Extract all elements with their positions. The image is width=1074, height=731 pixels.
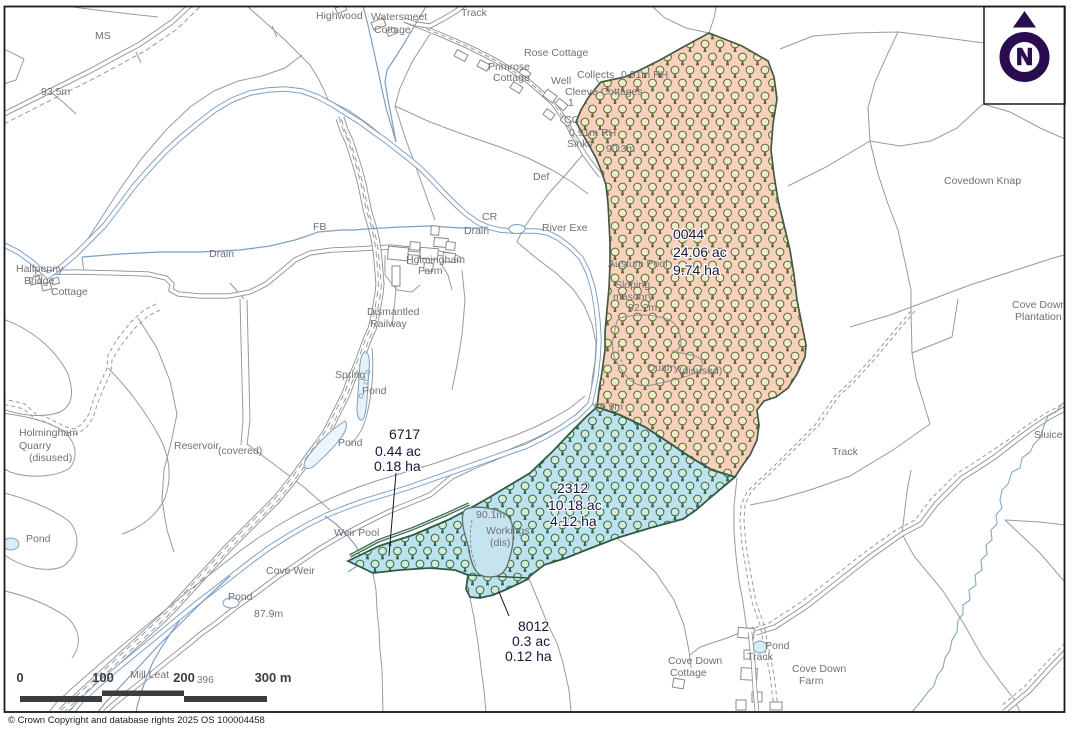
svg-text:Farm: Farm xyxy=(799,675,824,687)
svg-text:Spring: Spring xyxy=(335,369,366,381)
svg-text:Cleeve Cottages: Cleeve Cottages xyxy=(565,86,643,98)
svg-text:2312: 2312 xyxy=(557,480,588,496)
svg-text:Cove Down: Cove Down xyxy=(792,663,846,675)
svg-text:8012: 8012 xyxy=(518,618,549,634)
svg-text:N: N xyxy=(1016,44,1033,70)
svg-text:(disused): (disused) xyxy=(29,452,72,464)
svg-text:200: 200 xyxy=(173,670,195,685)
svg-text:Sluice: Sluice xyxy=(1034,429,1063,441)
svg-text:Drain: Drain xyxy=(209,248,234,260)
svg-text:Pond: Pond xyxy=(338,437,363,449)
svg-text:0: 0 xyxy=(16,670,23,685)
svg-text:Highwood: Highwood xyxy=(316,10,363,22)
svg-text:FB: FB xyxy=(313,221,326,233)
svg-text:Track: Track xyxy=(747,651,774,663)
svg-text:9.74 ha: 9.74 ha xyxy=(673,262,720,278)
svg-text:24.06 ac: 24.06 ac xyxy=(673,244,727,260)
svg-text:396: 396 xyxy=(197,675,214,686)
svg-text:4.12 ha: 4.12 ha xyxy=(550,513,597,529)
svg-text:300 m: 300 m xyxy=(255,670,292,685)
svg-text:(covered): (covered) xyxy=(218,445,262,457)
svg-text:Plantation: Plantation xyxy=(1015,311,1062,323)
svg-text:Pond: Pond xyxy=(228,591,253,603)
svg-text:Pond: Pond xyxy=(26,533,51,545)
svg-text:Sinks: Sinks xyxy=(567,138,593,150)
svg-text:Drain: Drain xyxy=(464,225,489,237)
svg-text:Rose Cottage: Rose Cottage xyxy=(524,47,588,59)
svg-text:0044: 0044 xyxy=(673,226,704,242)
svg-text:Sloping: Sloping xyxy=(615,279,650,291)
svg-text:6717: 6717 xyxy=(389,426,420,442)
svg-text:Pond: Pond xyxy=(362,385,387,397)
svg-text:0.3 ac: 0.3 ac xyxy=(512,633,550,649)
svg-text:Bridge: Bridge xyxy=(24,275,55,287)
svg-text:90.3m: 90.3m xyxy=(606,143,635,155)
svg-text:Reservoir: Reservoir xyxy=(174,440,219,452)
svg-text:0.91m RH: 0.91m RH xyxy=(621,69,668,81)
svg-text:CR: CR xyxy=(482,211,498,223)
svg-text:89.9m: 89.9m xyxy=(594,401,623,413)
svg-text:Collects: Collects xyxy=(577,69,614,81)
svg-text:Watersmeet: Watersmeet xyxy=(371,11,427,23)
svg-text:River Exe: River Exe xyxy=(542,222,588,234)
svg-text:Cove Down: Cove Down xyxy=(1012,299,1066,311)
svg-text:87.9m: 87.9m xyxy=(254,608,283,620)
svg-text:Cottage: Cottage xyxy=(374,24,411,36)
svg-text:Dismantled: Dismantled xyxy=(367,306,420,318)
svg-text:Cottage: Cottage xyxy=(493,72,530,84)
svg-text:Cove Weir: Cove Weir xyxy=(266,565,315,577)
svg-text:CC: CC xyxy=(564,114,580,126)
svg-text:Track: Track xyxy=(461,7,488,19)
svg-text:Cottage: Cottage xyxy=(51,286,88,298)
svg-text:Holmingham: Holmingham xyxy=(19,427,78,439)
svg-text:Weir Pool: Weir Pool xyxy=(334,527,379,539)
svg-text:(disused): (disused) xyxy=(679,365,722,377)
svg-text:Covedown Knap: Covedown Knap xyxy=(944,175,1021,187)
svg-text:100: 100 xyxy=(92,670,114,685)
svg-text:Cove Down: Cove Down xyxy=(668,655,722,667)
svg-text:Mill Leat: Mill Leat xyxy=(130,669,169,681)
svg-text:Austum Pool: Austum Pool xyxy=(608,258,668,270)
svg-text:Quarry: Quarry xyxy=(647,362,680,374)
svg-text:90.1m: 90.1m xyxy=(476,509,505,521)
svg-text:0.12 ha: 0.12 ha xyxy=(505,648,552,664)
svg-text:Farm: Farm xyxy=(418,265,443,277)
svg-text:92.2m: 92.2m xyxy=(628,302,657,314)
svg-text:MS: MS xyxy=(95,30,111,42)
svg-text:© Crown Copyright and database: © Crown Copyright and database rights 20… xyxy=(8,715,265,726)
svg-text:Cottage: Cottage xyxy=(670,667,707,679)
svg-text:(dis): (dis) xyxy=(490,537,510,549)
svg-text:93.5m: 93.5m xyxy=(41,86,70,98)
svg-text:Workings: Workings xyxy=(486,525,530,537)
svg-text:0.18 ha: 0.18 ha xyxy=(374,458,421,474)
svg-text:1: 1 xyxy=(568,97,574,109)
svg-text:Railway: Railway xyxy=(370,318,408,330)
svg-text:0.44 ac: 0.44 ac xyxy=(375,443,421,459)
svg-text:Quarry: Quarry xyxy=(19,440,52,452)
svg-text:10.18 ac: 10.18 ac xyxy=(548,497,602,513)
svg-text:Halfpenny: Halfpenny xyxy=(16,263,64,275)
svg-text:Def: Def xyxy=(533,171,549,183)
svg-text:Track: Track xyxy=(832,446,859,458)
